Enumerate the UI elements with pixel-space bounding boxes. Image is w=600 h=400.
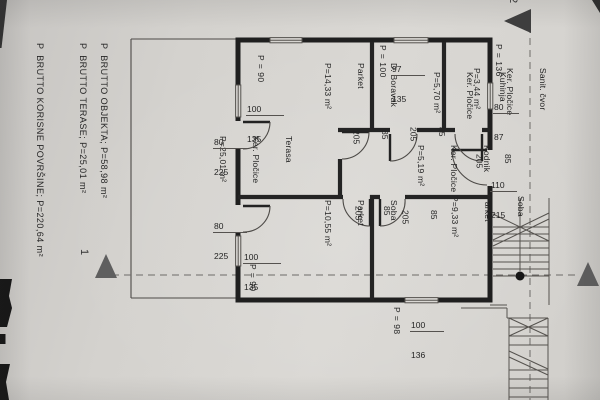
entry-door-dim-label: 110 215 xyxy=(490,162,517,240)
window-dim-label: 100 136 xyxy=(410,302,444,380)
window-dim-label: 100 135 xyxy=(246,86,284,164)
parapet-label: P = 90 xyxy=(256,55,266,83)
terrace-door-dim-label: 80 225 xyxy=(213,119,247,197)
axis-1-triangle-right xyxy=(577,262,599,286)
window-dim-label: 100 135 xyxy=(243,234,281,312)
axis-1-triangle-left xyxy=(95,254,117,278)
room-floor: Ker. Pločice xyxy=(448,145,459,192)
room-name: Terasa xyxy=(283,136,294,183)
floorplan-photo: P BRUTTO OBJEKTA; P=58,98 m² P BRUTTO TE… xyxy=(0,0,600,400)
door-dim-label: 85 205 xyxy=(389,127,465,141)
axis-intersection-dot xyxy=(516,272,525,281)
terrace-door-dim-label: 80 225 xyxy=(213,203,247,281)
room-area: P=10,55 m² xyxy=(322,200,333,246)
door-dim-label: 85 205 xyxy=(455,154,531,168)
window-dim-label: 80 87 xyxy=(493,84,519,162)
axis-1-label: 1 xyxy=(78,249,90,255)
summary-brutto-objekta: P BRUTTO OBJEKTA; P=58,98 m² xyxy=(99,43,109,198)
room-area: P=14,33 m² xyxy=(322,63,333,109)
parapet-label: P = 100 xyxy=(378,45,388,78)
parapet-label: P = 136 xyxy=(494,44,504,77)
parapet-label: P = 98 xyxy=(392,307,402,335)
summary-brutto-terase: P BRUTTO TERASE; P=25,01 m² xyxy=(78,43,88,193)
photo-edge-topright xyxy=(592,0,600,13)
photo-edge-topleft xyxy=(0,0,7,48)
door-dim-label: 85 205 xyxy=(381,210,457,224)
room-area: P=5,70 m² xyxy=(431,72,442,119)
room-area: P=3,44 m² xyxy=(471,68,482,115)
axis-2-triangle xyxy=(504,9,531,33)
axis-2-label: 2 xyxy=(507,0,519,3)
room-area: P=5,19 m² xyxy=(415,145,426,192)
summary-brutto-korisne: P BRUTTO KORISNE POVRŠINE; P=220,64 m² xyxy=(35,43,45,257)
window-dim-label: 97 135 xyxy=(391,46,425,124)
room-floor: Parket xyxy=(355,63,366,109)
room-name: Sanit. čvor xyxy=(537,68,548,115)
